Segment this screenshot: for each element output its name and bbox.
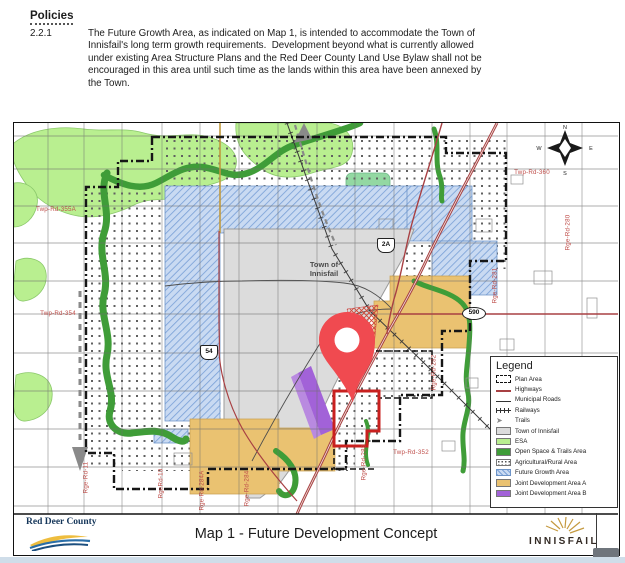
legend-item-label: Trails bbox=[515, 417, 530, 424]
road-label: Rge-Rd-284 bbox=[244, 461, 251, 517]
map-image[interactable]: N E S W Town of Innisfail Twp-Rd-360Twp-… bbox=[13, 122, 620, 556]
sun-rays-icon bbox=[542, 517, 586, 535]
legend-item-label: Agricultural/Rural Area bbox=[515, 459, 577, 466]
svg-text:N: N bbox=[563, 125, 567, 131]
road-label: Rge-Rd-284A bbox=[199, 463, 206, 519]
road-label: Rge-Rd-281 bbox=[492, 258, 499, 314]
legend-item-label: Plan Area bbox=[515, 376, 542, 383]
legend-item-label: Future Growth Area bbox=[515, 469, 569, 476]
legend-item: Agricultural/Rural Area bbox=[496, 457, 612, 467]
legend-highway-icon bbox=[496, 390, 511, 392]
clause-number: 2.2.1 bbox=[30, 28, 52, 39]
town-logo-text: INNISFAIL bbox=[512, 536, 616, 547]
town-of-innisfail-label: Town of Innisfail bbox=[292, 260, 356, 278]
legend-item-label: Joint Development Area A bbox=[515, 480, 586, 487]
document-page: Policies 2.2.1 The Future Growth Area, a… bbox=[0, 0, 625, 563]
legend-swatch-icon bbox=[496, 490, 511, 498]
legend-item-label: Joint Development Area B bbox=[515, 490, 587, 497]
map-title: Map 1 - Future Development Concept bbox=[106, 526, 526, 542]
legend-item: Highways bbox=[496, 384, 612, 394]
road-label: RgeRd-10 bbox=[158, 456, 165, 512]
highway-shield: 2A bbox=[377, 238, 395, 253]
legend-item: Joint Development Area A bbox=[496, 478, 612, 488]
legend-swatch-icon bbox=[496, 427, 511, 435]
legend-dots-icon bbox=[496, 459, 511, 467]
town-logo: INNISFAIL bbox=[512, 517, 616, 547]
legend-swatch-icon bbox=[496, 479, 511, 487]
clause-text: The Future Growth Area, as indicated on … bbox=[88, 28, 486, 90]
road-label: Rge-Rd-280 bbox=[565, 205, 572, 261]
legend-item-label: Railways bbox=[515, 407, 540, 414]
legend-swatch-icon bbox=[496, 448, 511, 456]
county-logo-text: Red Deer County bbox=[26, 517, 97, 527]
legend-item-label: Open Space & Trails Area bbox=[515, 448, 586, 455]
legend-item-label: ESA bbox=[515, 438, 527, 445]
page-edge-strip bbox=[0, 557, 625, 563]
page-title: Policies bbox=[30, 10, 73, 25]
scrollbar-track-line bbox=[596, 513, 597, 548]
legend-item: Town of Innisfail bbox=[496, 426, 612, 436]
scrollbar-thumb[interactable] bbox=[593, 548, 619, 557]
road-label: Rge-Rd-282 bbox=[431, 345, 438, 401]
highway-shield: 54 bbox=[200, 345, 218, 360]
legend-swatch-icon bbox=[496, 438, 511, 446]
road-label: Twp-Rd-354 bbox=[30, 310, 86, 317]
legend-item-label: Highways bbox=[515, 386, 542, 393]
legend-plan-icon bbox=[496, 375, 511, 383]
legend-item: Future Growth Area bbox=[496, 468, 612, 478]
road-label: Twp-Rd-352 bbox=[383, 449, 439, 456]
road-label: Twp-Rd-360 bbox=[504, 169, 560, 176]
legend-item: Joint Development Area B bbox=[496, 488, 612, 498]
legend-item: Railways bbox=[496, 405, 612, 415]
svg-text:S: S bbox=[563, 171, 567, 177]
legend-item-label: Town of Innisfail bbox=[515, 428, 559, 435]
legend-item: ESA bbox=[496, 436, 612, 446]
legend-title: Legend bbox=[496, 360, 612, 372]
legend-item-label: Municipal Roads bbox=[515, 396, 561, 403]
legend-item: Plan Area bbox=[496, 374, 612, 384]
legend-item: Open Space & Trails Area bbox=[496, 447, 612, 457]
svg-text:E: E bbox=[589, 146, 593, 152]
highway-shield: 590 bbox=[462, 307, 486, 320]
svg-text:W: W bbox=[536, 146, 542, 152]
road-label: Rge-Rd-11 bbox=[83, 450, 90, 506]
legend-hatch-icon bbox=[496, 469, 511, 477]
legend-road-icon bbox=[496, 401, 511, 402]
map-legend: Legend Plan AreaHighwaysMunicipal RoadsR… bbox=[490, 356, 618, 508]
legend-item: ➤Trails bbox=[496, 416, 612, 426]
road-label: Rge-Rd-283 bbox=[361, 435, 368, 491]
legend-trail-icon: ➤ bbox=[496, 417, 511, 425]
legend-item: Municipal Roads bbox=[496, 395, 612, 405]
county-logo-icon bbox=[28, 529, 92, 551]
road-label: Twp-Rd-355A bbox=[28, 206, 84, 213]
legend-rail-icon bbox=[496, 408, 511, 413]
